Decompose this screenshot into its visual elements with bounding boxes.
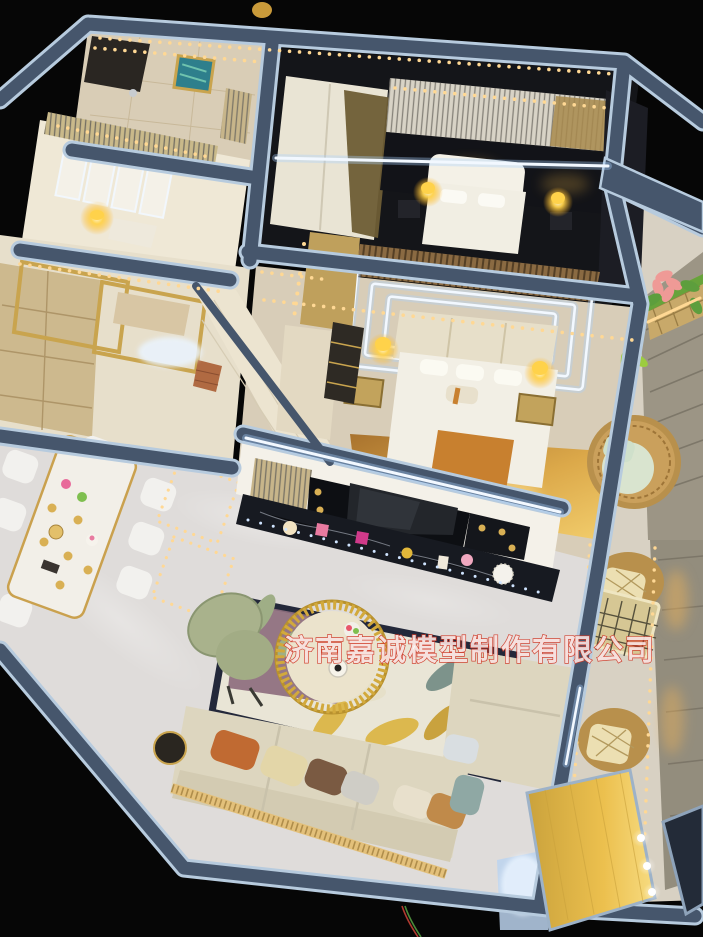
closet-lamp [90, 210, 104, 220]
gold-wardrobe [300, 232, 360, 332]
bed-secondary [422, 153, 526, 254]
photo-stage: 济南嘉诚模型制作有限公司 [0, 0, 703, 937]
marble-tile-wall [0, 263, 100, 437]
watermark-text: 济南嘉诚模型制作有限公司 [284, 633, 656, 667]
gold-vase [252, 2, 272, 18]
hall-glow [138, 337, 202, 367]
apartment-model-photo: 济南嘉诚模型制作有限公司 [0, 0, 703, 937]
bathroom-mirror [84, 36, 150, 92]
nightstand [398, 200, 420, 218]
chrome-fixture [129, 89, 137, 97]
tub-chair-2 [578, 708, 650, 772]
nightstand-gold [516, 394, 555, 425]
side-table [154, 732, 186, 764]
